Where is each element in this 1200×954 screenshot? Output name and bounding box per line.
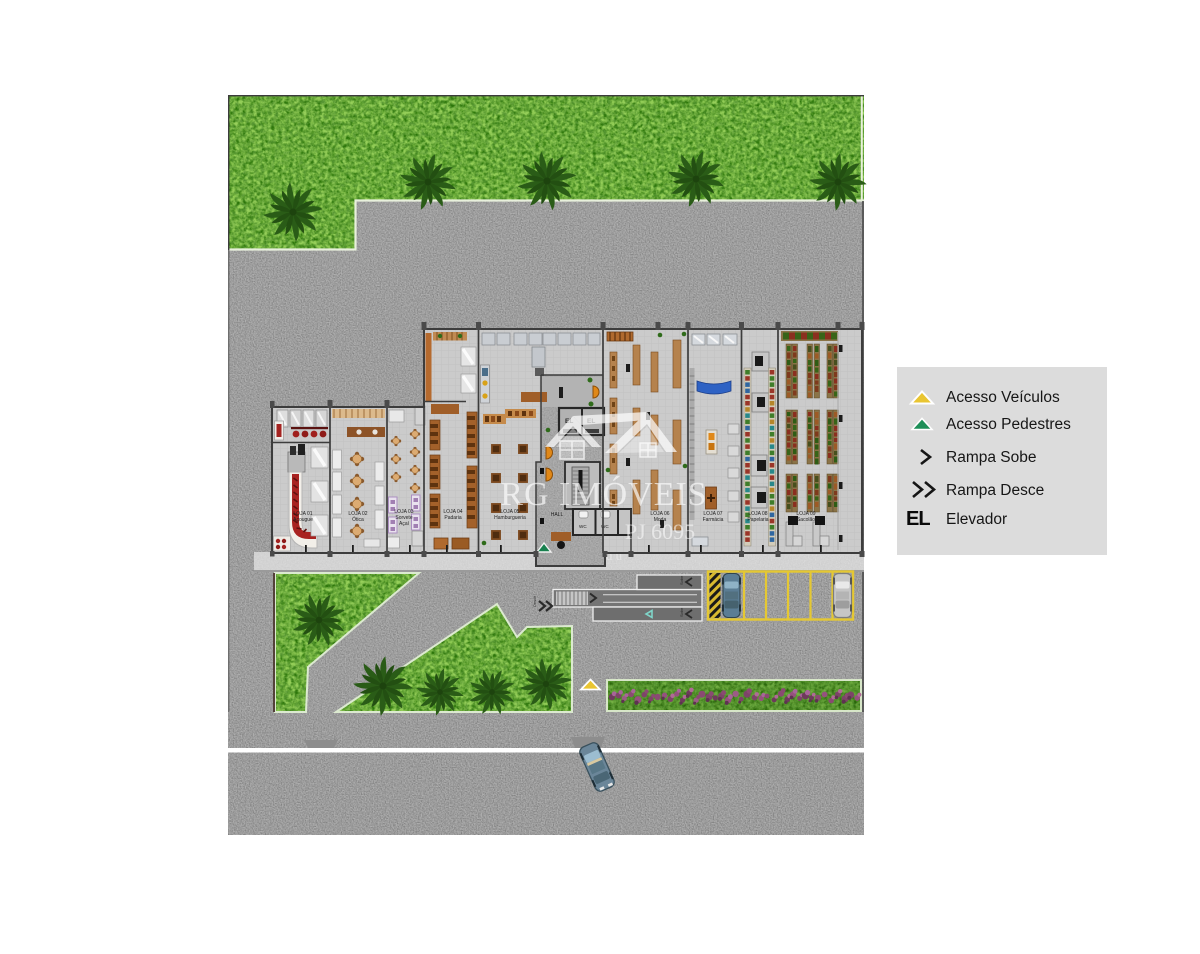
svg-text:RG IMÓVEIS: RG IMÓVEIS <box>500 475 707 513</box>
svg-text:u u: u u <box>606 548 623 563</box>
svg-text:PJ 6095: PJ 6095 <box>625 519 695 544</box>
svg-text:Hamburgueria: Hamburgueria <box>494 515 526 521</box>
svg-text:Elevador: Elevador <box>946 511 1007 528</box>
svg-text:Desce: Desce <box>532 595 537 607</box>
svg-text:Padaria: Padaria <box>444 515 461 521</box>
svg-text:EL: EL <box>906 508 930 530</box>
svg-text:Açougue: Açougue <box>293 517 313 523</box>
svg-text:Sacolão: Sacolão <box>797 517 815 523</box>
svg-text:Rampa Desce: Rampa Desce <box>946 482 1044 499</box>
svg-text:Acesso Veículos: Acesso Veículos <box>946 389 1060 406</box>
svg-text:Acesso Pedestres: Acesso Pedestres <box>946 416 1071 433</box>
svg-text:WC: WC <box>579 524 587 529</box>
svg-text:Farmácia: Farmácia <box>703 517 724 523</box>
svg-text:Rampa Sobe: Rampa Sobe <box>946 449 1036 466</box>
svg-text:Ótica: Ótica <box>352 516 364 523</box>
svg-text:Sobe: Sobe <box>679 575 684 585</box>
svg-text:Sobe: Sobe <box>679 607 684 617</box>
svg-text:Açaí: Açaí <box>399 521 410 527</box>
svg-text:Papelaria: Papelaria <box>747 517 768 523</box>
